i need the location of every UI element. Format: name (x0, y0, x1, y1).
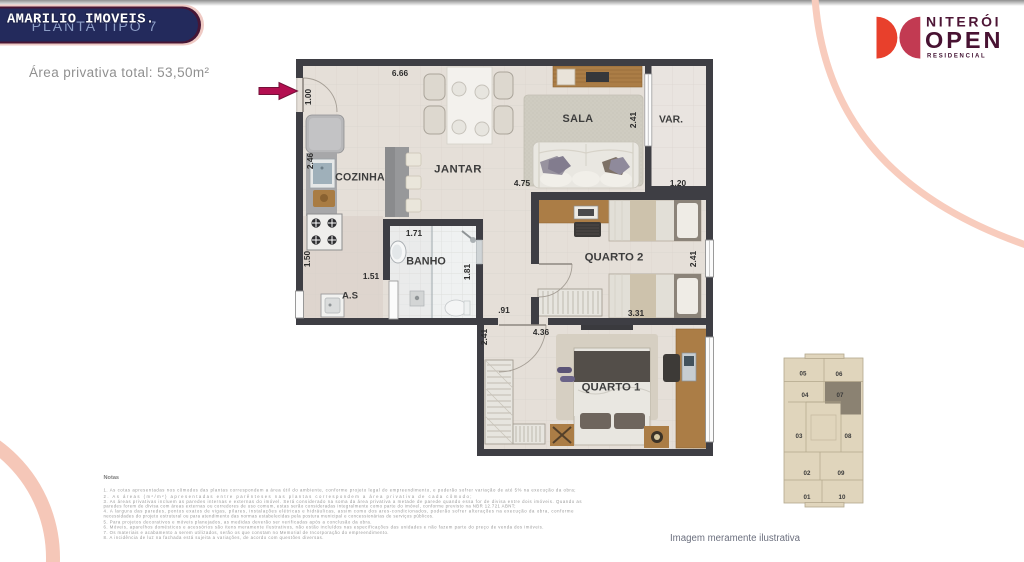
svg-text:1.81: 1.81 (462, 264, 472, 281)
svg-text:6.66: 6.66 (392, 68, 409, 78)
svg-text:04: 04 (802, 392, 809, 399)
svg-text:2.41: 2.41 (688, 251, 698, 268)
svg-text:VAR.: VAR. (659, 115, 683, 126)
svg-text:RESIDENCIAL: RESIDENCIAL (927, 54, 986, 60)
svg-text:10: 10 (839, 494, 846, 501)
svg-text:QUARTO 2: QUARTO 2 (585, 252, 644, 264)
svg-text:8. A incidência de luz na fach: 8. A incidência de luz na fachada está s… (104, 535, 324, 540)
svg-text:1.50: 1.50 (302, 251, 312, 268)
svg-text:A.S: A.S (342, 291, 359, 302)
svg-text:01: 01 (804, 494, 811, 501)
svg-text:05: 05 (800, 371, 807, 378)
svg-text:08: 08 (845, 433, 852, 440)
svg-text:4.75: 4.75 (514, 178, 531, 188)
svg-text:4.36: 4.36 (533, 327, 550, 337)
svg-text:1.71: 1.71 (406, 228, 423, 238)
svg-text:1.51: 1.51 (363, 271, 380, 281)
svg-text:07: 07 (837, 392, 844, 399)
svg-text:necessidades do projeto estrut: necessidades do projeto estrutural ou pa… (104, 513, 434, 518)
svg-text:3.31: 3.31 (628, 308, 645, 318)
svg-text:Imagem meramente ilustrativa: Imagem meramente ilustrativa (670, 533, 800, 544)
svg-text:JANTAR: JANTAR (434, 164, 482, 176)
svg-text:1.00: 1.00 (303, 89, 313, 106)
svg-text:.91: .91 (498, 305, 510, 315)
svg-text:Área privativa total: 53,50m²: Área privativa total: 53,50m² (29, 65, 210, 80)
svg-text:1. As cotas apresentadas nos c: 1. As cotas apresentadas nos cômodos das… (104, 488, 576, 493)
svg-text:09: 09 (838, 470, 845, 477)
svg-text:QUARTO 1: QUARTO 1 (582, 382, 641, 394)
svg-text:BANHO: BANHO (406, 256, 446, 268)
svg-text:02: 02 (804, 470, 811, 477)
svg-text:6. Móveis, aparelhos doméstico: 6. Móveis, aparelhos domésticos e acessó… (104, 524, 544, 529)
svg-text:2.41: 2.41 (628, 112, 638, 129)
svg-text:1.20: 1.20 (670, 178, 687, 188)
svg-text:2.46: 2.46 (305, 153, 315, 170)
svg-text:SALA: SALA (563, 113, 594, 125)
svg-text:AMARILIO IMOVEIS.: AMARILIO IMOVEIS. (7, 13, 155, 28)
svg-text:Notas: Notas (104, 475, 120, 481)
svg-text:COZINHA: COZINHA (335, 172, 385, 184)
svg-text:2.41: 2.41 (479, 329, 489, 346)
svg-text:06: 06 (836, 371, 843, 378)
svg-text:03: 03 (796, 433, 803, 440)
